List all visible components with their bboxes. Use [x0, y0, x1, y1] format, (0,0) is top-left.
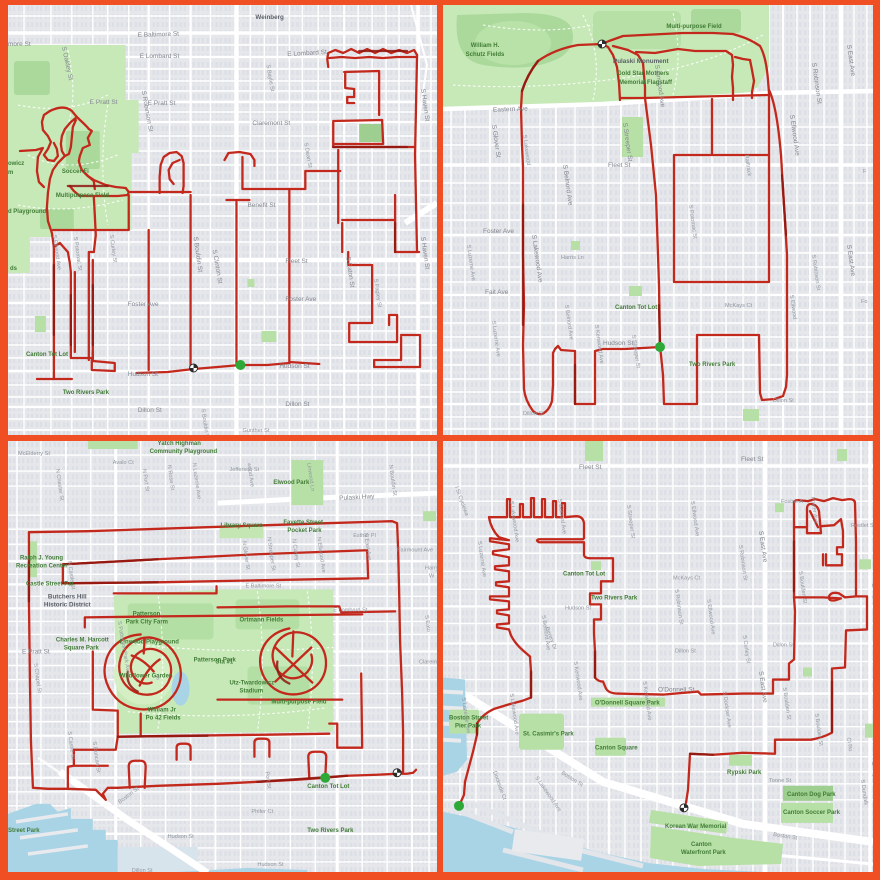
svg-text:Multi-purpose Field: Multi-purpose Field: [271, 700, 327, 706]
svg-text:more St: more St: [8, 41, 31, 48]
svg-text:E Pratt St: E Pratt St: [90, 99, 118, 106]
svg-text:Castle Street Par: Castle Street Par: [26, 581, 75, 587]
svg-text:W: W: [429, 573, 435, 579]
svg-text:Foster Ave: Foster Ave: [285, 296, 316, 303]
svg-text:Hudson St: Hudson St: [128, 371, 158, 378]
svg-text:Dillon St: Dillon St: [675, 648, 696, 654]
svg-text:Library Square: Library Square: [221, 523, 264, 529]
svg-text:Soccer Fi: Soccer Fi: [62, 169, 89, 175]
svg-text:Toone St: Toone St: [769, 778, 791, 784]
svg-text:Linwood Playground: Linwood Playground: [120, 639, 180, 645]
svg-text:Korean War Memorial: Korean War Memorial: [665, 824, 727, 830]
svg-text:Hudson St: Hudson St: [257, 862, 284, 868]
svg-text:Dillon St: Dillon St: [523, 411, 544, 417]
svg-text:Canton Tot Lot: Canton Tot Lot: [563, 571, 605, 577]
svg-text:William Jr: William Jr: [148, 708, 177, 714]
svg-text:Ortmann Fields: Ortmann Fields: [239, 617, 284, 623]
svg-text:Multipurpose Field: Multipurpose Field: [56, 193, 109, 199]
svg-text:Fayette Street: Fayette Street: [283, 520, 323, 526]
svg-text:Fairmount Ave: Fairmount Ave: [397, 547, 433, 553]
svg-text:Canton: Canton: [691, 842, 712, 848]
svg-text:Canton Soccer Park: Canton Soccer Park: [783, 810, 841, 816]
svg-text:Wildflower Garden: Wildflower Garden: [120, 674, 173, 680]
svg-text:Fleet St: Fleet St: [741, 456, 764, 463]
svg-text:Memorial Flagstaff: Memorial Flagstaff: [619, 80, 673, 86]
svg-text:O'Donnell St: O'Donnell St: [658, 687, 694, 694]
svg-text:E Baltimore St: E Baltimore St: [245, 583, 281, 589]
svg-text:Fleet St: Fleet St: [608, 162, 631, 169]
svg-text:Dillon St: Dillon St: [773, 398, 794, 404]
svg-text:St. Casimir's Park: St. Casimir's Park: [523, 732, 574, 738]
svg-text:McKays Ct: McKays Ct: [673, 575, 700, 581]
svg-text:Fleet St: Fleet St: [285, 258, 308, 265]
svg-text:Clarem: Clarem: [419, 660, 437, 666]
svg-text:Yatch Highman: Yatch Highman: [158, 441, 202, 447]
svg-text:Sta #1: Sta #1: [216, 660, 234, 666]
svg-text:Fostne A: Fostne A: [781, 499, 803, 505]
svg-text:McElderry St: McElderry St: [18, 451, 50, 457]
svg-text:Pocket Park: Pocket Park: [287, 528, 322, 534]
svg-text:Recreation Center: Recreation Center: [16, 563, 68, 569]
svg-text:Dillon St: Dillon St: [138, 407, 162, 414]
svg-text:Canton Dog Park: Canton Dog Park: [787, 792, 836, 798]
svg-text:Community Playground: Community Playground: [150, 449, 218, 455]
svg-text:Stadium: Stadium: [239, 689, 263, 695]
svg-text:Two Rivers Park: Two Rivers Park: [307, 828, 354, 834]
svg-text:Two Rivers Park: Two Rivers Park: [63, 390, 110, 396]
svg-text:Square Park: Square Park: [64, 645, 100, 651]
svg-text:Two Rivers Park: Two Rivers Park: [689, 362, 736, 368]
svg-text:Canton Square: Canton Square: [595, 746, 638, 752]
svg-text:Ralph J. Young: Ralph J. Young: [20, 555, 63, 561]
svg-text:Waterfront Park: Waterfront Park: [681, 850, 726, 856]
svg-text:Fo: Fo: [861, 299, 868, 305]
svg-text:Benefit St: Benefit St: [247, 202, 275, 209]
svg-text:Po 42 Fields: Po 42 Fields: [146, 716, 182, 722]
svg-text:E Pratt St: E Pratt St: [148, 100, 176, 107]
svg-text:m: m: [8, 170, 13, 176]
svg-text:Dillon St: Dillon St: [773, 642, 794, 648]
svg-text:E Baltimore St: E Baltimore St: [138, 31, 180, 39]
svg-text:Fait Ave: Fait Ave: [485, 289, 509, 296]
svg-text:d Playground: d Playground: [8, 209, 47, 215]
svg-text:Weinberg: Weinberg: [255, 14, 284, 21]
svg-text:Avalo Ct: Avalo Ct: [113, 460, 134, 466]
svg-text:Gunther St: Gunther St: [242, 428, 269, 434]
svg-text:Eastern Ave: Eastern Ave: [493, 105, 529, 113]
svg-text:Dillon St: Dillon St: [132, 868, 153, 872]
svg-text:S: S: [156, 676, 160, 682]
svg-text:Fleet St: Fleet St: [579, 464, 602, 471]
svg-text:Two Rivers Park: Two Rivers Park: [591, 595, 638, 601]
svg-text:Patterson: Patterson: [133, 611, 161, 617]
svg-text:Schutz Fields: Schutz Fields: [466, 52, 505, 58]
svg-text:Rustlet St: Rustlet St: [851, 523, 873, 529]
svg-text:Harry: Harry: [425, 565, 437, 571]
svg-text:Hudson St: Hudson St: [168, 834, 195, 840]
svg-text:Hudson St: Hudson St: [279, 363, 309, 370]
svg-text:Harris Ln: Harris Ln: [561, 255, 584, 261]
svg-text:Charles M. Harcott: Charles M. Harcott: [56, 637, 109, 643]
svg-text:Canton Tot Lot: Canton Tot Lot: [307, 784, 349, 790]
svg-text:Multi-purpose Field: Multi-purpose Field: [666, 24, 722, 30]
svg-text:Street Park: Street Park: [8, 828, 40, 834]
svg-text:ds: ds: [10, 266, 18, 272]
svg-text:McKays Ct: McKays Ct: [725, 303, 752, 309]
svg-text:Canton Tot Lot: Canton Tot Lot: [615, 305, 657, 311]
svg-text:Foster Ave: Foster Ave: [128, 301, 159, 308]
svg-text:Jefferson St: Jefferson St: [229, 467, 259, 473]
svg-text:Phifer Ct: Phifer Ct: [251, 809, 273, 815]
svg-text:owicz: owicz: [8, 161, 24, 167]
svg-text:Hudson St: Hudson St: [603, 340, 634, 347]
svg-text:Foster Ave: Foster Ave: [483, 228, 514, 235]
svg-text:Utz-Twardowicz: Utz-Twardowicz: [229, 681, 274, 687]
svg-text:Rypski Park: Rypski Park: [727, 770, 762, 776]
svg-text:Dillon St: Dillon St: [285, 401, 309, 408]
svg-text:Canton Tot Lot: Canton Tot Lot: [26, 352, 68, 358]
svg-text:F: F: [863, 169, 867, 175]
svg-text:Pulaski Monument: Pulaski Monument: [613, 58, 670, 65]
svg-text:E Pratt St: E Pratt St: [22, 648, 50, 655]
svg-text:Claremont St: Claremont St: [252, 120, 290, 127]
svg-text:William H.: William H.: [471, 43, 500, 49]
svg-text:Park City Farm: Park City Farm: [126, 619, 168, 625]
svg-text:Historic District: Historic District: [44, 601, 92, 608]
svg-text:E Lombard St: E Lombard St: [140, 53, 180, 60]
svg-text:E Lombard St: E Lombard St: [333, 607, 368, 613]
svg-text:Elwood Park: Elwood Park: [273, 480, 310, 486]
svg-text:Butchers Hill: Butchers Hill: [48, 593, 87, 600]
svg-text:Hudson St: Hudson St: [565, 605, 592, 611]
